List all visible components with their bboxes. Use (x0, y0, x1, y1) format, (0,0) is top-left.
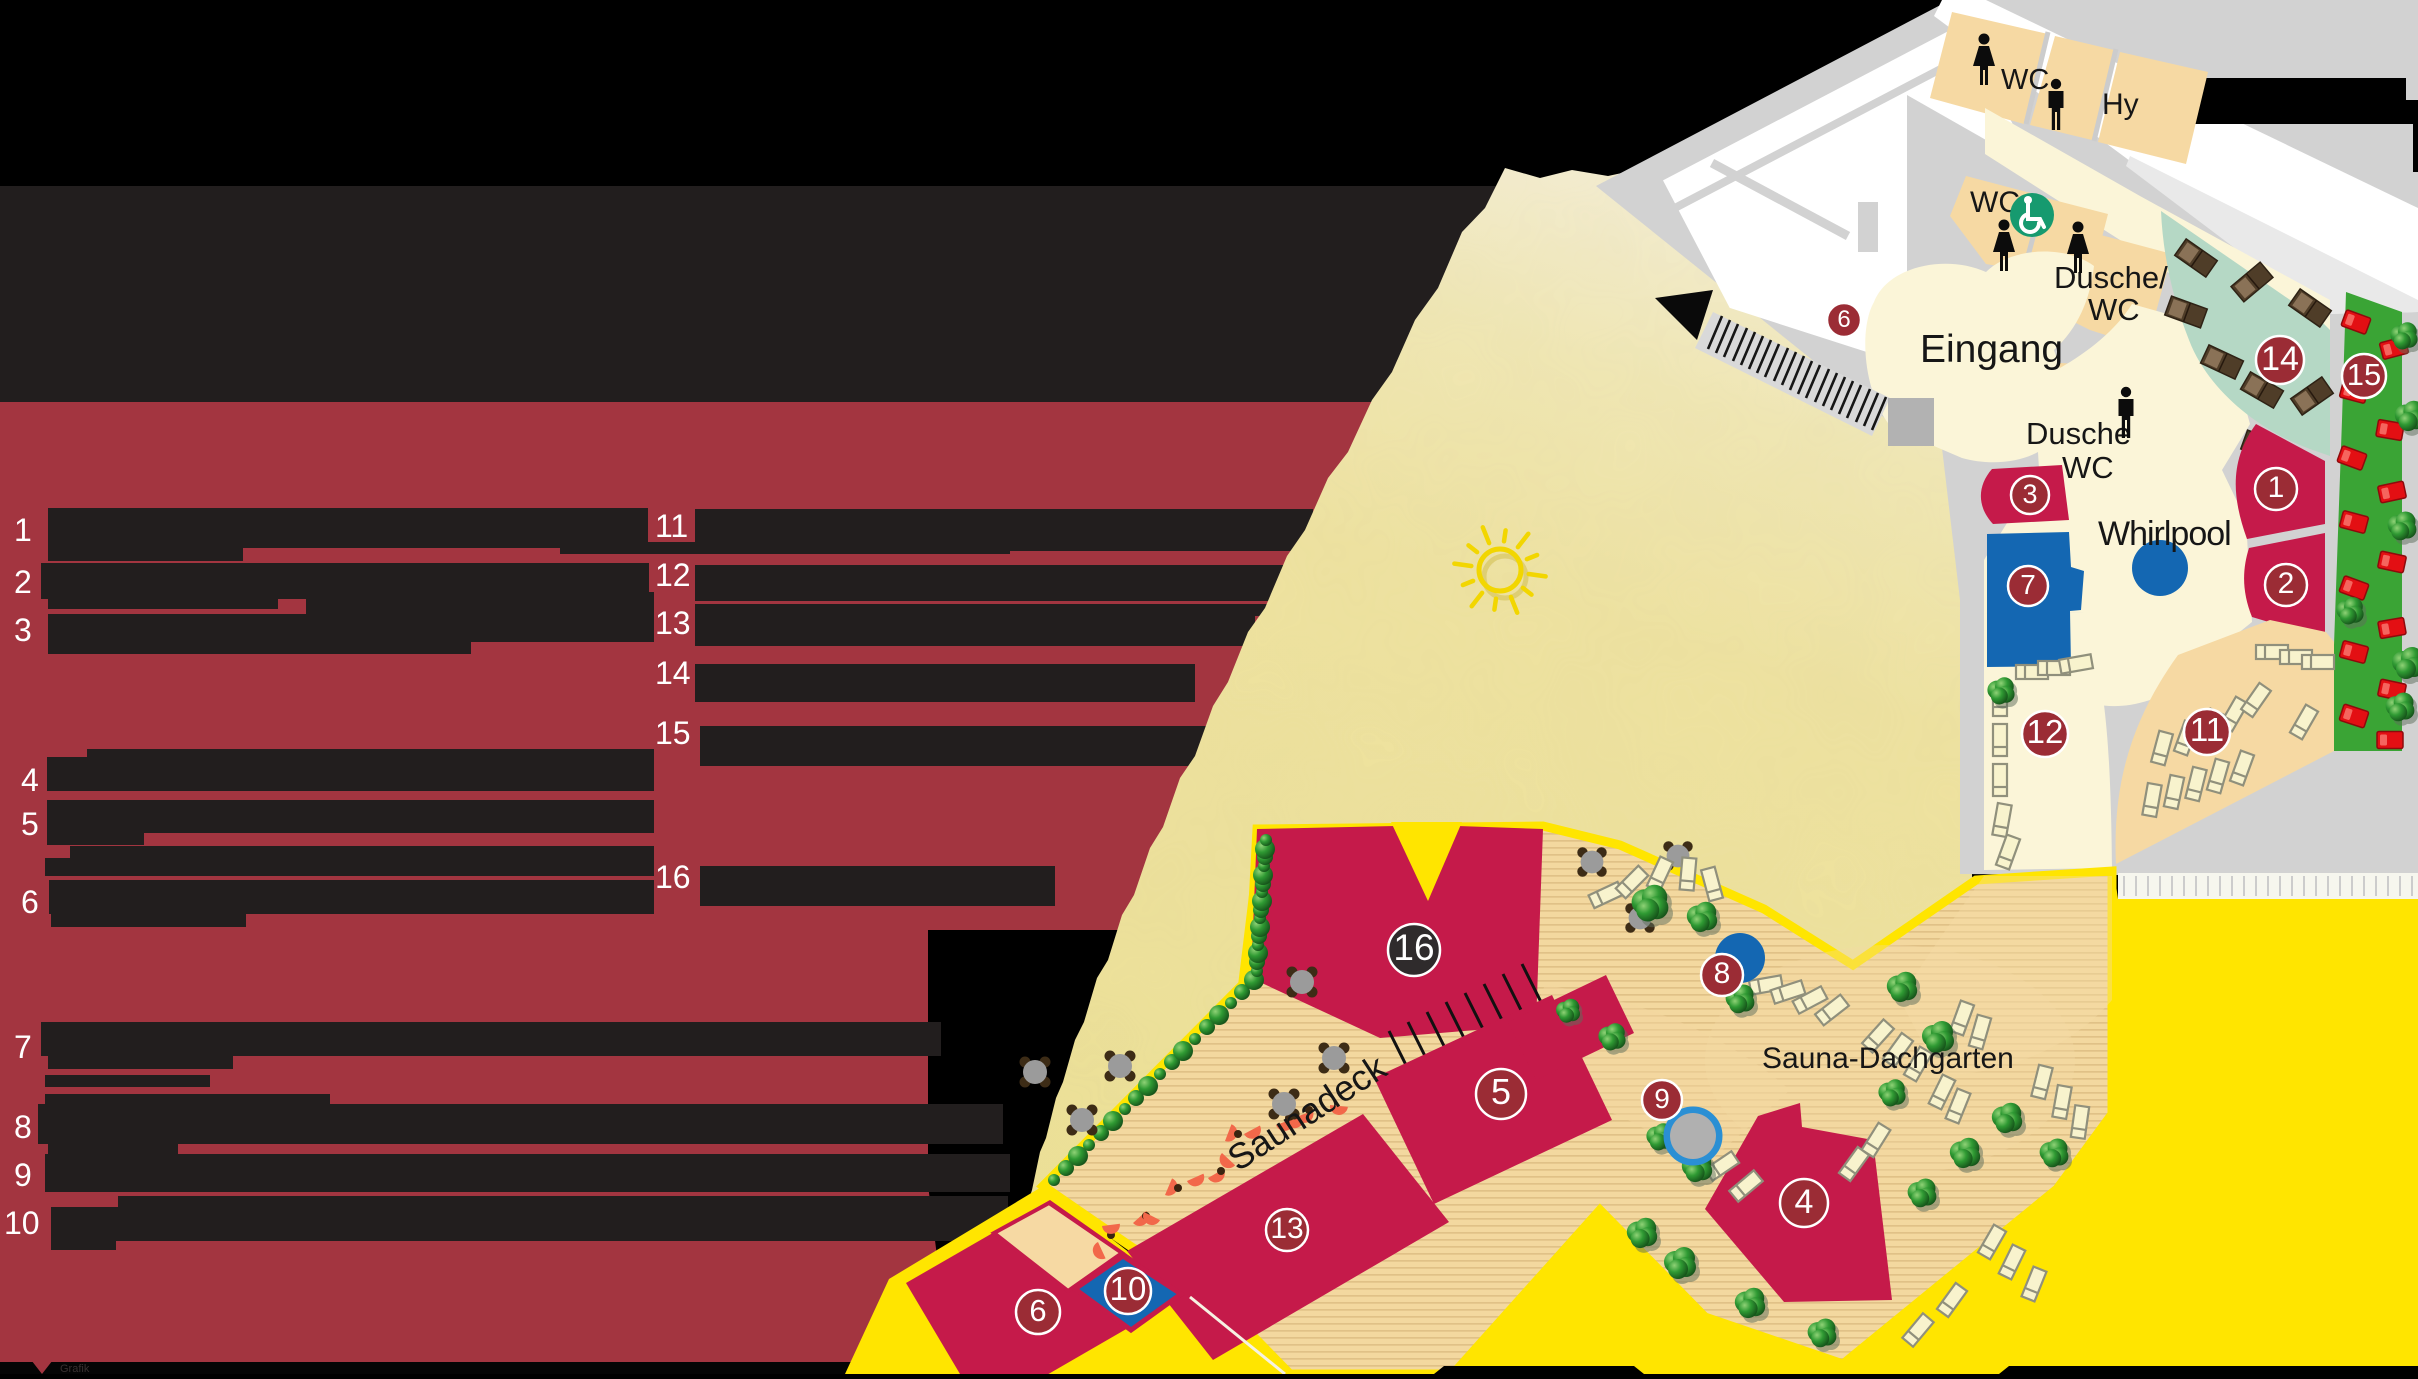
svg-text:9: 9 (14, 1157, 32, 1193)
svg-text:16: 16 (1393, 927, 1434, 968)
svg-text:2: 2 (14, 564, 32, 600)
svg-text:12: 12 (655, 557, 691, 593)
svg-text:6: 6 (1029, 1293, 1046, 1328)
svg-text:8: 8 (14, 1109, 32, 1145)
svg-text:Whirlpool: Whirlpool (2098, 515, 2231, 553)
svg-text:2: 2 (2278, 567, 2295, 600)
svg-text:7: 7 (2020, 569, 2036, 600)
svg-text:15: 15 (655, 715, 691, 751)
svg-text:1: 1 (14, 512, 32, 548)
svg-text:13: 13 (655, 605, 691, 641)
svg-text:3: 3 (14, 612, 32, 648)
svg-text:5: 5 (1491, 1071, 1511, 1112)
svg-text:4: 4 (21, 762, 39, 798)
svg-text:13: 13 (1270, 1212, 1303, 1245)
svg-text:16: 16 (655, 859, 691, 895)
svg-text:Grafik: Grafik (60, 1363, 90, 1374)
svg-text:WC: WC (2001, 64, 2049, 96)
svg-text:11: 11 (655, 508, 688, 544)
svg-text:8: 8 (1714, 957, 1731, 990)
svg-text:14: 14 (655, 655, 691, 691)
svg-text:5: 5 (21, 806, 39, 842)
svg-text:Hy: Hy (2102, 88, 2139, 121)
svg-text:10: 10 (4, 1205, 40, 1241)
svg-text:3: 3 (2022, 479, 2037, 509)
svg-text:Dusche/: Dusche/ (2054, 260, 2168, 295)
svg-text:6: 6 (21, 884, 39, 920)
svg-text:7: 7 (14, 1029, 32, 1065)
svg-text:Eingang: Eingang (1920, 328, 2063, 371)
svg-text:Dusche: Dusche (2026, 416, 2131, 451)
svg-text:15: 15 (2347, 357, 2381, 392)
svg-text:10: 10 (1110, 1270, 1147, 1307)
svg-text:Sauna-Dachgarten: Sauna-Dachgarten (1762, 1042, 2014, 1075)
svg-text:14: 14 (2261, 340, 2299, 378)
svg-text:11: 11 (2190, 711, 2224, 748)
svg-text:WC: WC (2062, 450, 2114, 485)
svg-text:1: 1 (2268, 471, 2285, 504)
svg-text:12: 12 (2027, 713, 2064, 750)
svg-text:6: 6 (1837, 306, 1850, 333)
svg-text:9: 9 (1654, 1083, 1670, 1114)
svg-text:4: 4 (1795, 1183, 1814, 1221)
svg-text:WC: WC (2088, 292, 2140, 327)
